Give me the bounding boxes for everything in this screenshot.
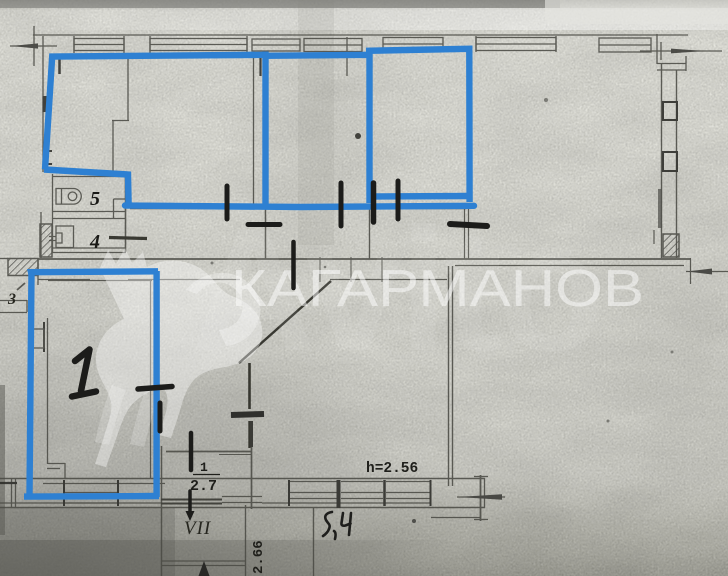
svg-text:4: 4: [89, 231, 100, 253]
svg-text:5: 5: [90, 188, 100, 210]
svg-text:2.7: 2.7: [190, 478, 217, 495]
svg-text:2.66: 2.66: [251, 540, 267, 574]
svg-text:3: 3: [7, 291, 16, 308]
svg-text:1: 1: [200, 460, 208, 475]
svg-text:VII: VII: [184, 518, 212, 539]
svg-text:h=2.56: h=2.56: [366, 461, 418, 477]
